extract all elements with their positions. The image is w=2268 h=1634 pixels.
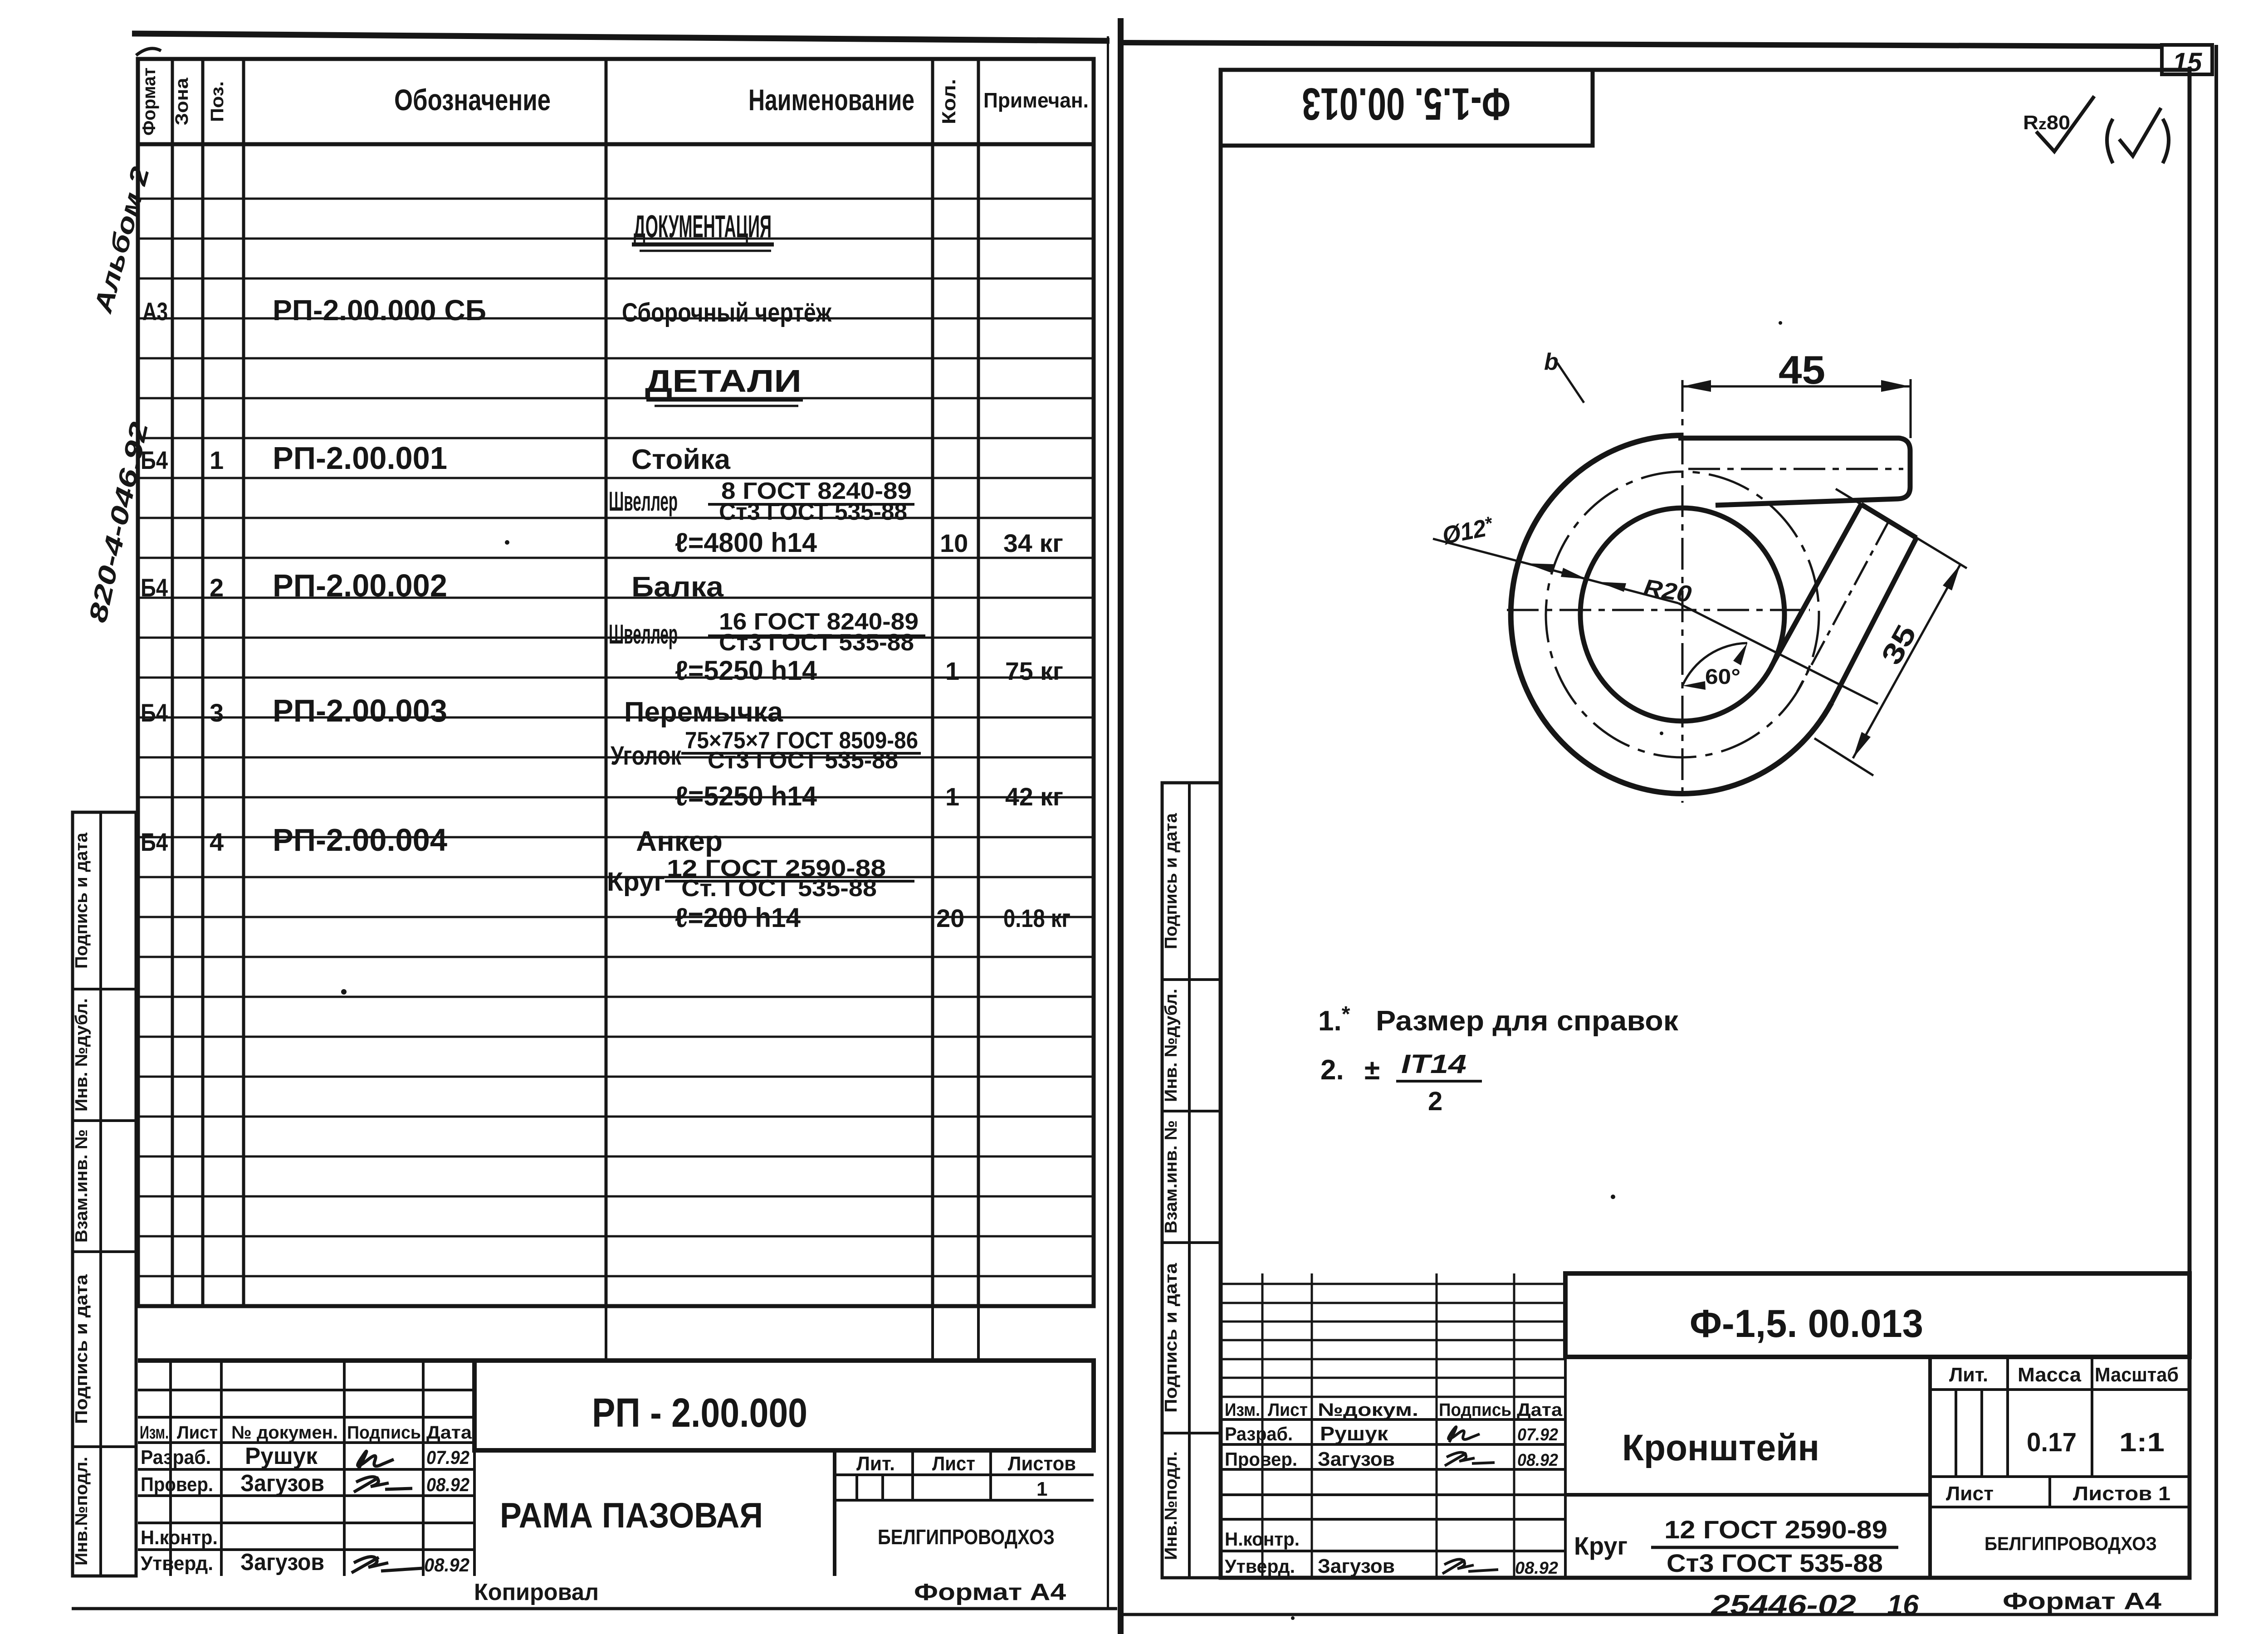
svg-text:Наименование: Наименование (748, 83, 914, 117)
svg-text:Загузов: Загузов (1318, 1555, 1395, 1577)
svg-text:10: 10 (940, 529, 968, 557)
svg-text:ℓ=5250 h14: ℓ=5250 h14 (675, 781, 817, 811)
svg-text:Перемычка: Перемычка (624, 697, 783, 728)
svg-text:Подпись и дата: Подпись и дата (1162, 813, 1181, 949)
svg-text:РП-2.00.003: РП-2.00.003 (273, 693, 447, 728)
svg-text:Уголок: Уголок (611, 741, 682, 771)
svg-text:Лист: Лист (1268, 1400, 1308, 1420)
svg-text:Ст3 ГОСТ 535-88: Ст3 ГОСТ 535-88 (719, 499, 907, 525)
svg-text:Ст3 ГОСТ 535-88: Ст3 ГОСТ 535-88 (719, 629, 914, 656)
svg-text:45: 45 (1779, 347, 1825, 392)
svg-text:Копировал: Копировал (474, 1579, 599, 1605)
svg-text:Взам.инв. №: Взам.инв. № (72, 1129, 91, 1243)
svg-text:60°: 60° (1705, 664, 1740, 688)
svg-text:Н.контр.: Н.контр. (1225, 1528, 1300, 1550)
svg-text:Н.контр.: Н.контр. (141, 1527, 218, 1549)
svg-text:Подпись: Подпись (347, 1423, 421, 1443)
svg-text:РАМА ПАЗОВАЯ: РАМА ПАЗОВАЯ (500, 1495, 763, 1535)
svg-text:Зона: Зона (172, 78, 192, 126)
svg-text:ℓ=200 h14: ℓ=200 h14 (675, 902, 801, 933)
svg-text:Рушук: Рушук (245, 1443, 318, 1469)
svg-text:А3: А3 (142, 297, 168, 326)
svg-text:75 кг: 75 кг (1005, 657, 1063, 685)
svg-text:b: b (1544, 349, 1559, 375)
svg-text:ДЕТАЛИ: ДЕТАЛИ (645, 363, 802, 399)
svg-text:34 кг: 34 кг (1003, 529, 1063, 557)
svg-text:Подпись и дата: Подпись и дата (72, 1274, 91, 1424)
svg-text:РП-2.00.004: РП-2.00.004 (273, 822, 447, 858)
svg-text:1: 1 (210, 446, 224, 474)
svg-text:№докум.: №докум. (1318, 1400, 1418, 1420)
svg-text:Ст. ГОСТ 535-88: Ст. ГОСТ 535-88 (681, 875, 877, 902)
svg-text:Лит.: Лит. (856, 1453, 895, 1475)
svg-text:07.92: 07.92 (1517, 1425, 1558, 1444)
svg-text:Разраб.: Разраб. (1225, 1423, 1293, 1444)
svg-text:15: 15 (2173, 48, 2202, 77)
svg-text:Стойка: Стойка (631, 444, 731, 475)
svg-text:Рушук: Рушук (1320, 1423, 1388, 1445)
svg-text:РП-2.00.000 СБ: РП-2.00.000 СБ (273, 294, 486, 327)
svg-text:Подпись: Подпись (1439, 1400, 1511, 1420)
svg-text:Подпись и дата: Подпись и дата (1162, 1263, 1181, 1413)
svg-text:25446-02: 25446-02 (1711, 1590, 1856, 1621)
svg-text:0.18 кг: 0.18 кг (1003, 904, 1070, 932)
svg-text:2.: 2. (1320, 1054, 1344, 1086)
svg-text:3: 3 (210, 698, 224, 727)
svg-text:42 кг: 42 кг (1005, 782, 1063, 811)
svg-text:2: 2 (1428, 1087, 1442, 1116)
svg-text:Кронштейн: Кронштейн (1622, 1427, 1819, 1468)
svg-text:Дата: Дата (1517, 1400, 1563, 1420)
svg-text:Утверд.: Утверд. (1225, 1556, 1295, 1577)
svg-text:РП-2.00.002: РП-2.00.002 (273, 568, 447, 603)
svg-text:Б4: Б4 (141, 828, 168, 856)
svg-text:№ докумен.: № докумен. (231, 1423, 338, 1443)
svg-text:1: 1 (1036, 1478, 1047, 1500)
svg-text:Разраб.: Разраб. (141, 1446, 211, 1468)
svg-text:Изм.: Изм. (1225, 1400, 1260, 1420)
svg-text:Анкер: Анкер (636, 826, 723, 857)
svg-text:Ст3 ГОСТ 535-88: Ст3 ГОСТ 535-88 (708, 747, 898, 774)
svg-text:Лист: Лист (932, 1453, 975, 1475)
svg-text:Изм.: Изм. (140, 1423, 169, 1443)
svg-text:0.17: 0.17 (2027, 1428, 2077, 1457)
svg-text:Инв. №дубл.: Инв. №дубл. (72, 998, 91, 1112)
svg-text:20: 20 (936, 904, 964, 932)
svg-text:Лист: Лист (1946, 1483, 1994, 1505)
svg-text:Ф-1,5. 00.013: Ф-1,5. 00.013 (1690, 1302, 1923, 1346)
svg-text:БЕЛГИПРОВОДХОЗ: БЕЛГИПРОВОДХОЗ (1984, 1533, 2157, 1554)
svg-text:16: 16 (1887, 1590, 1919, 1621)
svg-text:±: ± (1364, 1054, 1380, 1086)
svg-text:Листов 1: Листов 1 (2073, 1483, 2170, 1505)
svg-text:08.92: 08.92 (1517, 1451, 1558, 1470)
svg-text:Rz80: Rz80 (2023, 112, 2070, 134)
svg-text:Инв.№подл.: Инв.№подл. (1162, 1451, 1181, 1560)
svg-text:IT14: IT14 (1401, 1049, 1466, 1079)
svg-text:Инв. №дубл.: Инв. №дубл. (1162, 989, 1181, 1102)
svg-text:Загузов: Загузов (240, 1470, 324, 1497)
svg-text:1: 1 (945, 782, 959, 811)
svg-text:Провер.: Провер. (1225, 1449, 1297, 1470)
svg-text:Примечан.: Примечан. (983, 88, 1089, 112)
svg-text:08.92: 08.92 (1515, 1559, 1558, 1578)
svg-text:ℓ=4800 h14: ℓ=4800 h14 (675, 527, 817, 558)
svg-text:Круг: Круг (1574, 1532, 1628, 1560)
svg-text:1:1: 1:1 (2119, 1428, 2165, 1457)
svg-text:Сборочный чертёж: Сборочный чертёж (622, 298, 832, 327)
svg-text:Балка: Балка (631, 571, 724, 603)
svg-text:Б4: Б4 (141, 698, 168, 727)
svg-text:Лист: Лист (177, 1423, 218, 1443)
svg-text:ДОКУМЕНТАЦИЯ: ДОКУМЕНТАЦИЯ (634, 209, 772, 244)
svg-text:Швеллер: Швеллер (609, 486, 678, 517)
svg-text:Инв.№подл.: Инв.№подл. (72, 1457, 91, 1566)
svg-text:Ст3 ГОСТ 535-88: Ст3 ГОСТ 535-88 (1667, 1549, 1883, 1577)
svg-text:Круг: Круг (607, 867, 665, 897)
svg-text:1: 1 (945, 657, 959, 685)
svg-text:Формат: Формат (139, 68, 159, 136)
svg-text:Подпись и дата: Подпись и дата (72, 832, 91, 969)
svg-text:Лит.: Лит. (1949, 1364, 1988, 1386)
svg-text:Листов: Листов (1008, 1453, 1076, 1475)
svg-text:Провер.: Провер. (141, 1473, 213, 1496)
svg-text:Взам.инв. №: Взам.инв. № (1162, 1120, 1181, 1234)
svg-text:Кол.: Кол. (938, 79, 959, 124)
svg-text:Утверд.: Утверд. (141, 1552, 213, 1575)
svg-text:4: 4 (210, 828, 224, 856)
svg-text:08.92: 08.92 (424, 1554, 469, 1575)
svg-text:Масштаб: Масштаб (2095, 1364, 2179, 1386)
svg-text:РП-2.00.001: РП-2.00.001 (273, 440, 447, 476)
svg-text:Размер для справок: Размер для справок (1376, 1005, 1679, 1037)
svg-text:Дата: Дата (426, 1423, 472, 1443)
svg-text:Обозначение: Обозначение (394, 83, 551, 117)
svg-text:Формат А4: Формат А4 (2003, 1588, 2161, 1614)
svg-text:Ф-1.5. 00.013: Ф-1.5. 00.013 (1302, 78, 1510, 129)
svg-text:Загузов: Загузов (1318, 1448, 1395, 1470)
svg-text:2: 2 (210, 573, 224, 602)
svg-text:ℓ=5250 h14: ℓ=5250 h14 (675, 655, 817, 686)
svg-text:Поз.: Поз. (207, 81, 227, 122)
svg-text:Загузов: Загузов (240, 1549, 324, 1575)
svg-text:Масса: Масса (2018, 1364, 2082, 1386)
svg-text:БЕЛГИПРОВОДХОЗ: БЕЛГИПРОВОДХОЗ (878, 1525, 1055, 1549)
svg-text:Формат А4: Формат А4 (914, 1579, 1066, 1605)
svg-text:07.92: 07.92 (426, 1447, 469, 1468)
svg-text:12 ГОСТ 2590-89: 12 ГОСТ 2590-89 (1664, 1515, 1887, 1544)
svg-text:Б4: Б4 (141, 573, 168, 602)
svg-text:РП - 2.00.000: РП - 2.00.000 (592, 1390, 807, 1436)
svg-text:Швеллер: Швеллер (609, 619, 678, 649)
svg-text:08.92: 08.92 (426, 1474, 469, 1495)
